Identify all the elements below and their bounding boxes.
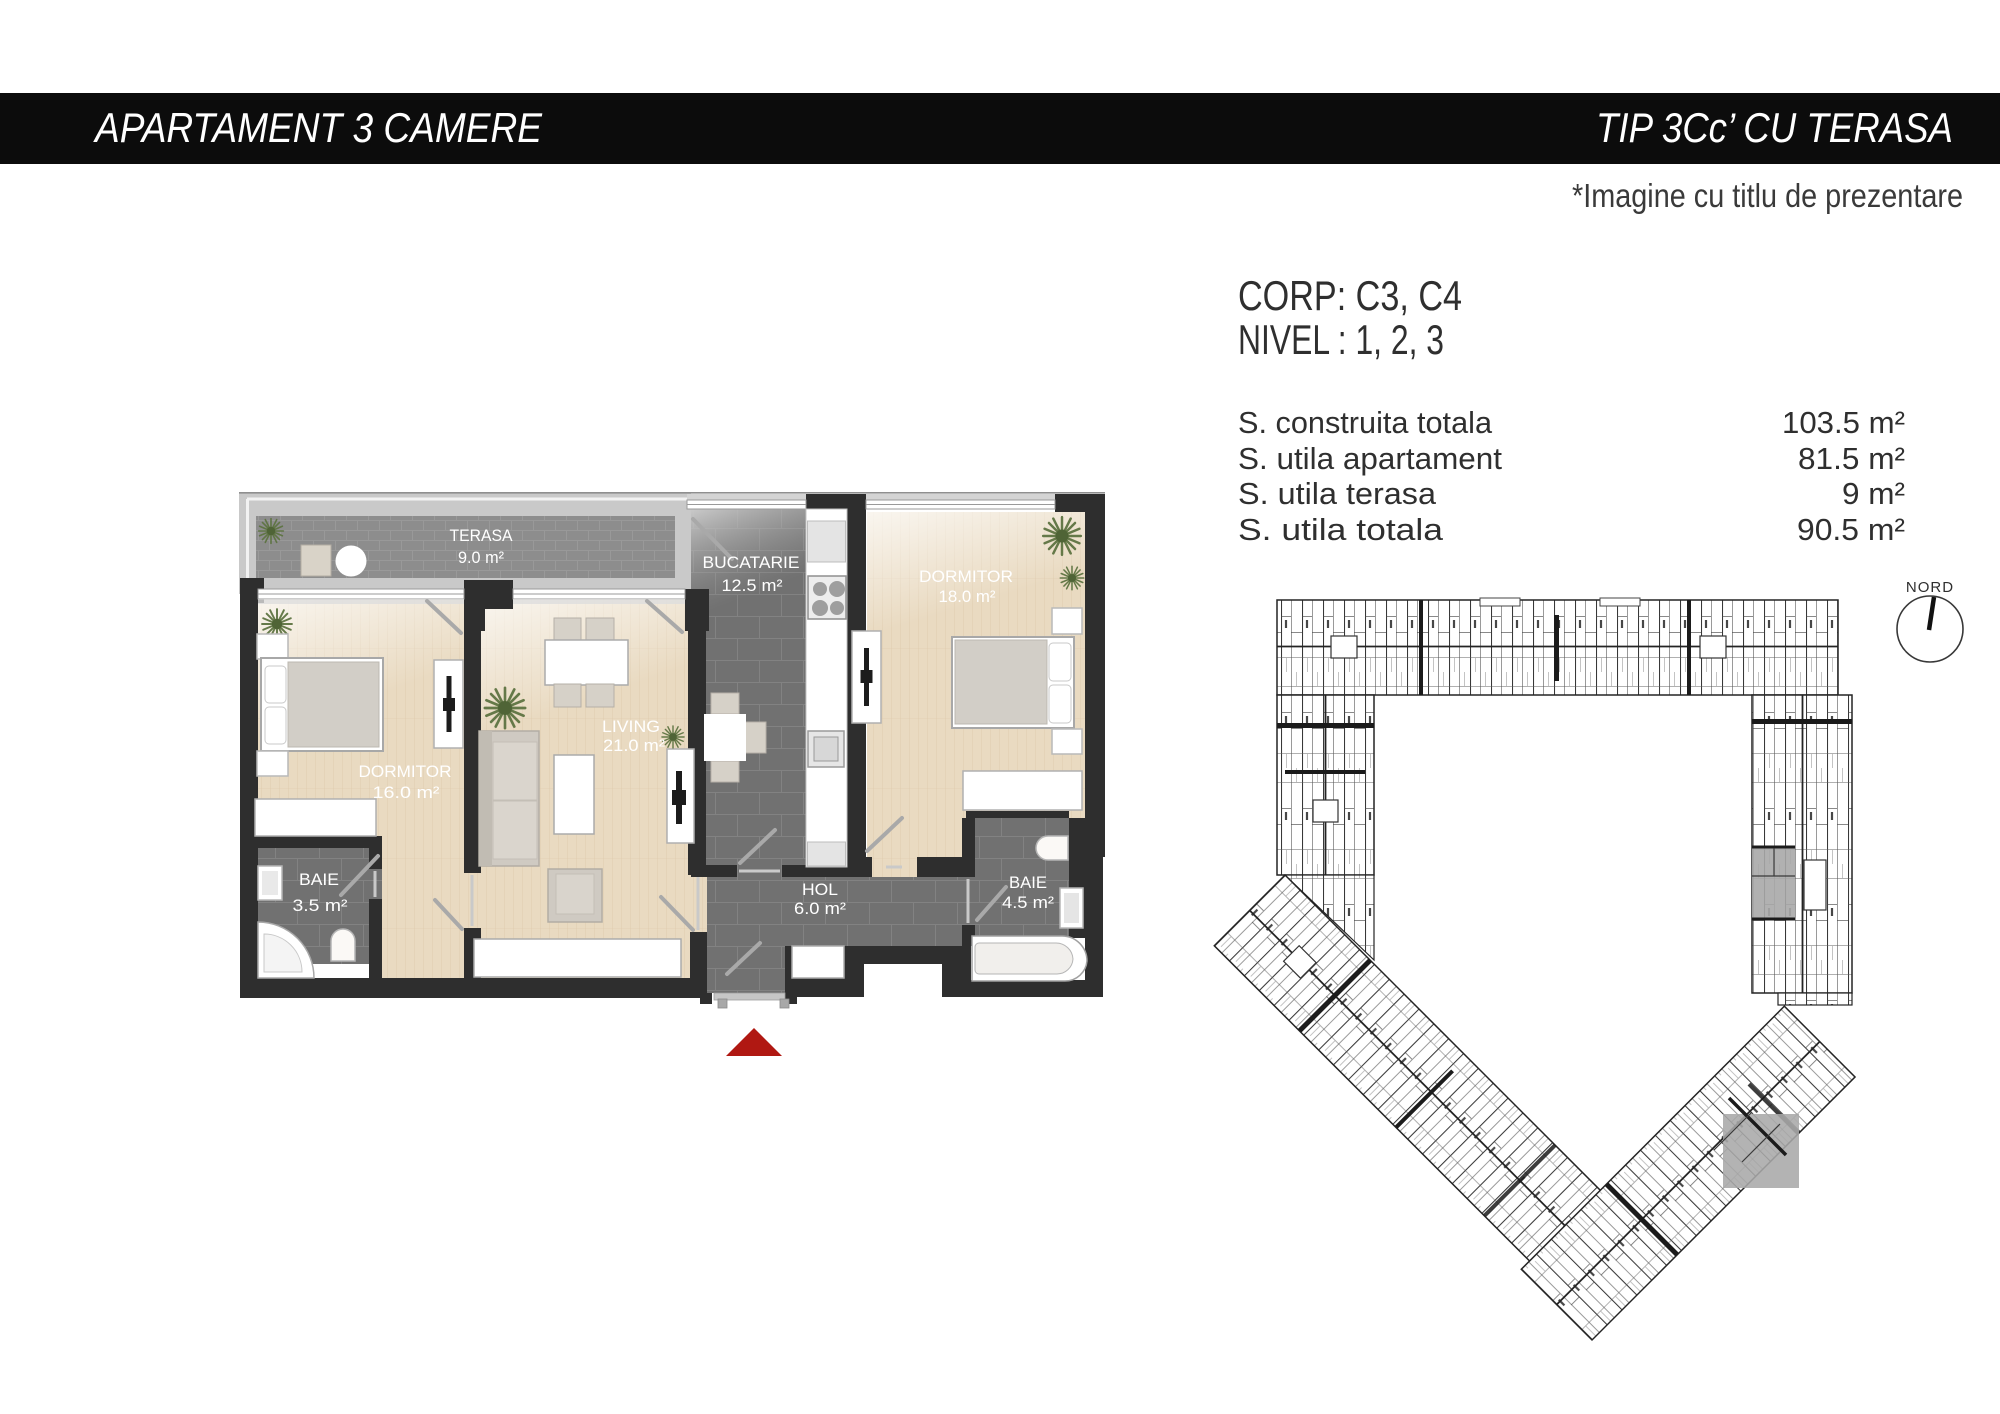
svg-text:90.5 m²: 90.5 m²	[1797, 512, 1905, 547]
svg-text:CORP: C3, C4: CORP: C3, C4	[1238, 272, 1462, 319]
svg-text:TIP 3Cc’ CU TERASA: TIP 3Cc’ CU TERASA	[1596, 104, 1953, 151]
svg-text:HOL: HOL	[802, 880, 838, 899]
svg-text:18.0 m²: 18.0 m²	[939, 587, 996, 606]
svg-text:3.5 m²: 3.5 m²	[293, 896, 348, 915]
svg-text:NORD: NORD	[1906, 579, 1954, 596]
svg-text:TERASA: TERASA	[450, 526, 514, 545]
svg-text:S. construita totala: S. construita totala	[1238, 405, 1493, 440]
svg-text:NIVEL : 1, 2, 3: NIVEL : 1, 2, 3	[1238, 316, 1444, 363]
svg-text:S. utila totala: S. utila totala	[1238, 512, 1444, 547]
svg-text:BUCATARIE: BUCATARIE	[703, 553, 800, 572]
svg-text:9 m²: 9 m²	[1842, 476, 1905, 511]
svg-text:DORMITOR: DORMITOR	[359, 762, 452, 781]
svg-text:APARTAMENT 3 CAMERE: APARTAMENT 3 CAMERE	[92, 104, 543, 151]
svg-text:103.5 m²: 103.5 m²	[1782, 405, 1905, 440]
svg-text:S. utila apartament: S. utila apartament	[1238, 441, 1502, 476]
svg-text:81.5 m²: 81.5 m²	[1798, 441, 1905, 476]
svg-text:DORMITOR: DORMITOR	[919, 567, 1013, 586]
svg-text:S. utila terasa: S. utila terasa	[1238, 476, 1437, 511]
svg-text:*Imagine cu titlu de prezentar: *Imagine cu titlu de prezentare	[1572, 177, 1963, 214]
svg-text:BAIE: BAIE	[1009, 873, 1047, 892]
svg-text:12.5 m²: 12.5 m²	[722, 576, 783, 595]
svg-text:21.0 m²: 21.0 m²	[603, 736, 665, 755]
svg-text:BAIE: BAIE	[299, 870, 339, 889]
svg-text:6.0 m²: 6.0 m²	[794, 899, 846, 918]
svg-text:16.0 m²: 16.0 m²	[373, 783, 440, 802]
svg-text:LIVING: LIVING	[602, 717, 660, 736]
svg-text:4.5 m²: 4.5 m²	[1002, 893, 1054, 912]
svg-text:9.0 m²: 9.0 m²	[458, 548, 504, 567]
